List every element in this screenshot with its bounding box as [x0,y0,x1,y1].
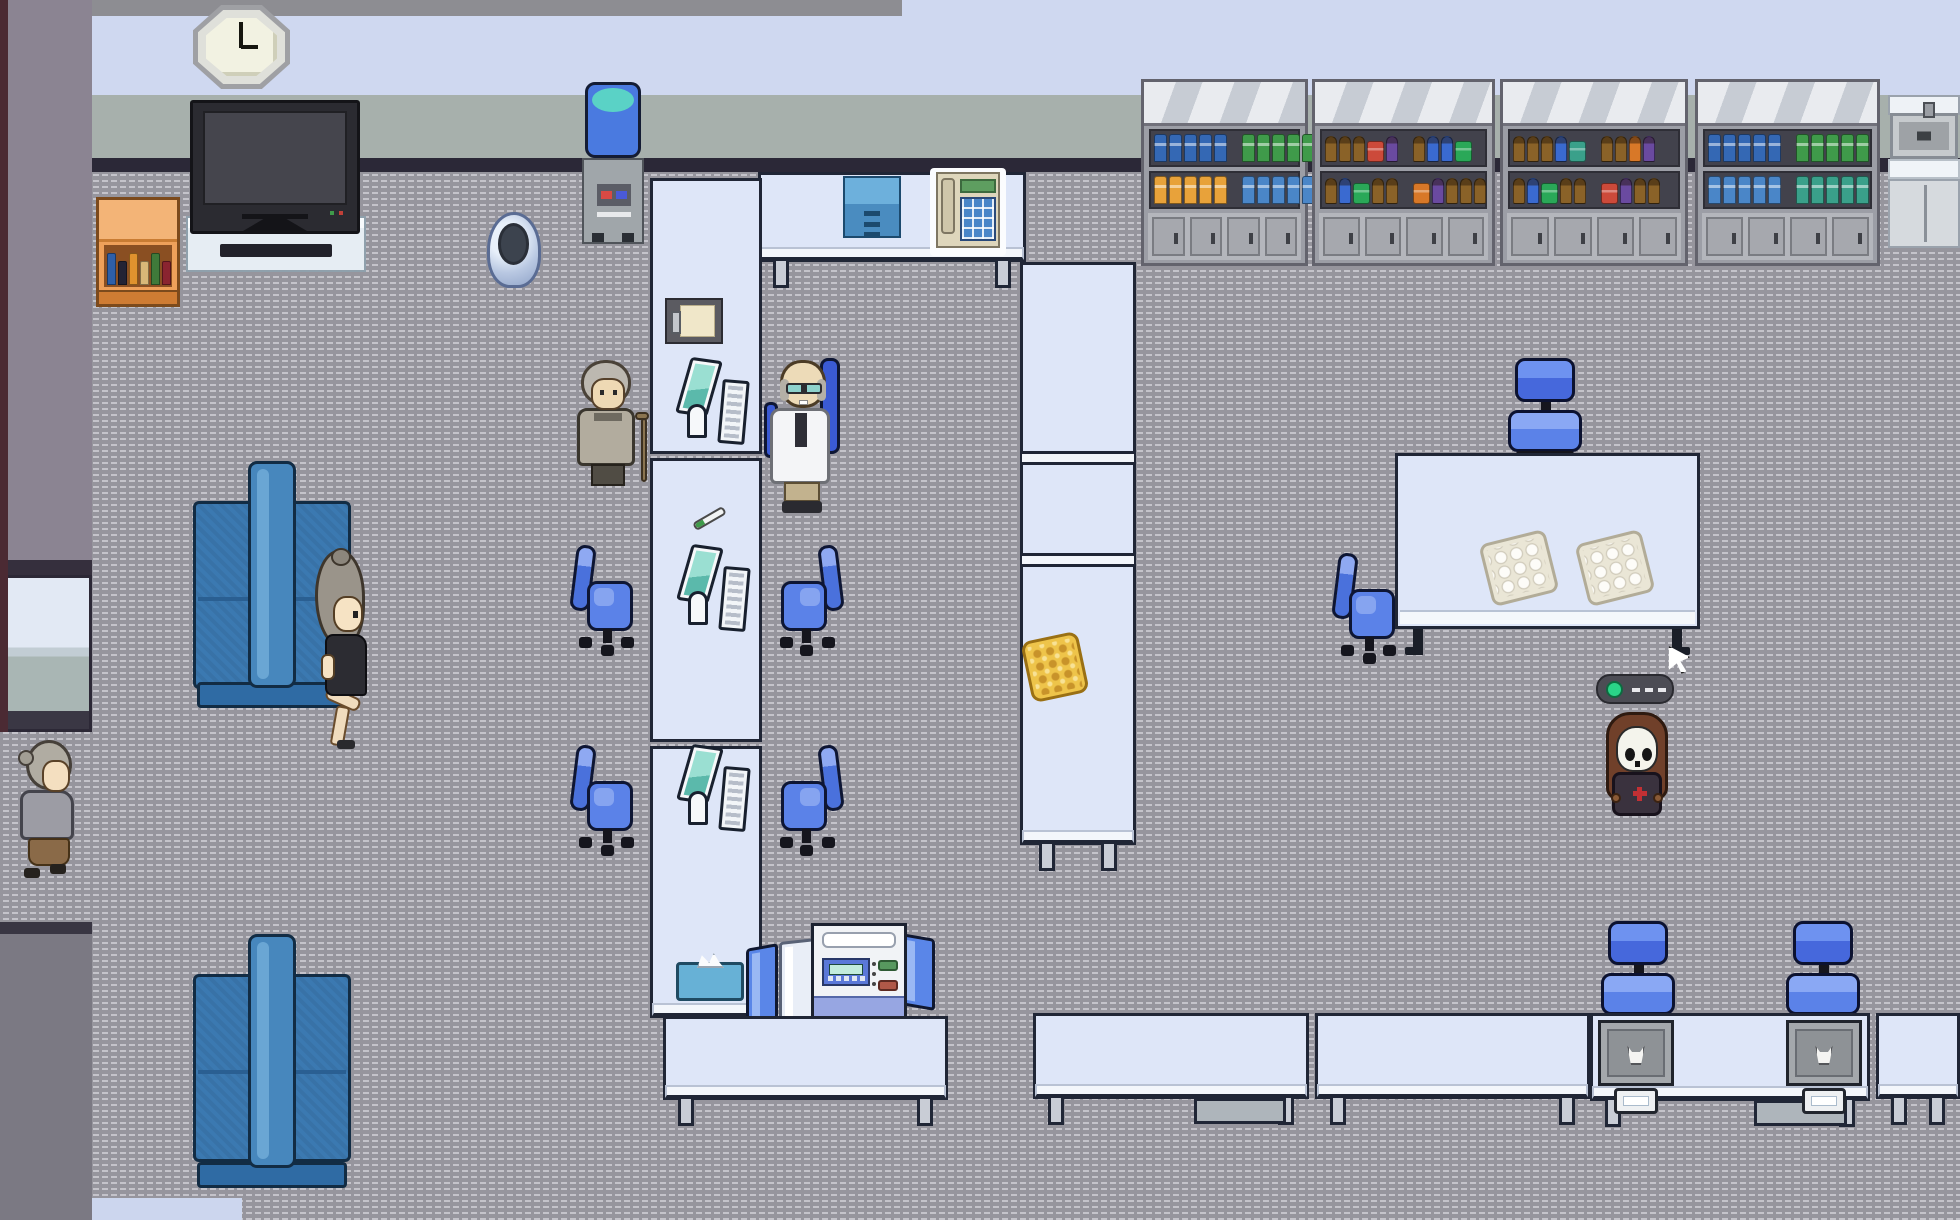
shelf-item [1386,136,1398,162]
shelf-item [1214,176,1227,204]
chair-highlight [1356,596,1376,614]
shelf-glass-top [1144,82,1305,126]
bottom-left-wall-top [0,922,92,934]
doctor-lapel [795,413,807,447]
phone-keypad [960,197,996,241]
couch-backrest-highlight [257,469,269,679]
chair-highlight [594,788,614,806]
doctor-coat [770,408,830,484]
chair-foot [800,845,813,856]
station-tray-inner [1811,1096,1837,1106]
keyboard-keys [725,572,744,625]
food-item[interactable] [1020,631,1090,704]
left-wall [0,0,92,575]
cabinet-door [1323,217,1360,256]
book [118,261,127,285]
shelf-gap [1588,202,1599,204]
old-woman-shoe [24,868,40,878]
shelf-row [1320,171,1487,209]
chair-seat [1601,973,1675,1015]
chair-foot [780,837,793,848]
hospital-room-scene [0,0,1960,1220]
doctor[interactable] [764,358,842,514]
tissue-sheet [697,953,724,968]
shelf-item [1723,176,1736,204]
shelf-item [1325,178,1337,204]
shelf-item [1272,176,1285,204]
power-led [1606,681,1623,698]
sink-unit[interactable] [1888,95,1960,248]
chair-foot [621,837,634,848]
bookshelf-books [104,245,172,287]
shelf-item [1257,134,1270,162]
chair-seat [781,581,827,631]
cabinet-door [1706,217,1743,256]
thermometer[interactable] [690,500,730,538]
shelf-item [1708,176,1721,204]
shelf-cabinet [1148,213,1301,260]
cabinet-door [1448,217,1485,256]
shelf-item [1753,176,1766,204]
woman-patient-sitting[interactable] [291,548,373,748]
cooler-foot [622,233,634,242]
woman-arm [321,654,335,680]
shelf-item [1242,176,1255,204]
shelf-glass-top [1503,82,1685,126]
analyzer-panel [822,958,870,986]
chair-foot [822,837,835,848]
waffle-pattern [1027,638,1082,696]
shelf-item [1455,141,1472,162]
tv-led [330,211,343,215]
bottom-left-floor-patch [92,1198,242,1220]
drawer-handle [864,211,880,216]
shelf-item [1723,134,1736,162]
doctor-glasses [786,383,822,394]
shelf-gap [1400,160,1411,162]
chair-foot [579,637,592,648]
trash-bin[interactable] [487,212,541,288]
shelf-item [1325,136,1337,162]
remote-device[interactable] [1596,674,1674,704]
chair-stem [603,829,612,843]
shelf-item [1708,134,1721,162]
thermometer-tip [695,520,705,529]
shelf-glass-top [1698,82,1877,126]
television [190,100,360,234]
work-desk [1033,1013,1309,1099]
station-tray [1614,1088,1658,1114]
skull-eye [1625,748,1635,761]
cabinet-door [1227,217,1260,256]
desk-cap [1878,1084,1958,1097]
shelf-item [1427,136,1439,162]
red-button [878,980,898,991]
office-chair[interactable] [573,743,637,861]
tv-screen [203,111,347,205]
chair-stem [802,829,811,843]
shelf-item [1386,178,1398,204]
old-woman-shawl [20,790,74,840]
shelf-cabinet [1702,213,1873,260]
shelf-item [1353,136,1365,162]
shelf-item [1634,178,1646,204]
chair-seat [587,581,633,631]
cabinet-door [1790,217,1827,256]
chair-foot [601,645,614,656]
sink-counter-band [1888,159,1960,179]
cabinet-door [1365,217,1402,256]
analyzer-slot [822,932,896,948]
cabinet-door [1190,217,1223,256]
old-man-face [591,378,625,410]
cabinet-door [1152,217,1185,256]
skull-nose [1635,761,1640,767]
chair-backrest [1793,921,1853,965]
shelf-row [1703,171,1872,209]
drawer-handle [864,222,880,227]
shelf-item [1413,136,1425,162]
shelf-item [1615,136,1627,162]
desk-leg [1559,1095,1575,1125]
thermometer-body [692,506,727,531]
old-man-eye [613,390,617,395]
analyzer-keys [828,976,866,981]
elderly-man-with-cane[interactable] [573,360,647,492]
chair-seat [1349,589,1395,639]
desk-phone[interactable] [930,168,1006,256]
shelf-item [1513,136,1525,162]
monitor-arm [688,791,708,825]
shelf-item [1541,183,1558,204]
counter-leg [1101,841,1117,871]
shelf-item [1446,178,1458,204]
desk-leg [678,1096,694,1126]
work-desk [1876,1013,1960,1099]
panel-highlight [752,952,760,1017]
shelf-item [1768,134,1781,162]
old-man-legs [591,464,625,486]
cabinet-door [1406,217,1443,256]
shelf-item [1527,136,1539,162]
chair-stem [603,629,612,643]
doctor-head [780,360,826,408]
old-man-collar [594,413,622,421]
office-chair[interactable] [1508,358,1582,458]
shelf-item [1413,183,1430,204]
cabinet-door [1265,217,1298,256]
office-chair[interactable] [573,543,637,657]
chair-highlight [800,588,820,606]
shelf-item [1738,134,1751,162]
supply-shelf-1[interactable] [1141,79,1308,266]
cold-tap [616,191,627,199]
couch-backrest [248,461,296,688]
chair-stem [802,629,811,643]
old-woman-hair-bun [18,750,34,766]
chair-foot [579,837,592,848]
skull-mask [1616,726,1658,772]
bin-opening [498,223,530,265]
shelf-item [1541,136,1553,162]
tv-neck [242,214,308,219]
old-man-eye [600,390,604,395]
shelf-item [1353,183,1370,204]
counter-cap [652,1003,760,1016]
shelf-gap [1783,202,1794,204]
desk-leg [995,258,1011,288]
chair-foot [1383,645,1396,656]
shelf-item [1154,134,1167,162]
counter-leg [1039,841,1055,871]
station-body [1786,1020,1862,1086]
shelf-item [1811,176,1824,204]
table-cap [1400,610,1695,624]
shelf-item [1367,141,1384,162]
bookshelf-top [99,200,177,242]
shelf-item [1768,176,1781,204]
drip-tray [597,212,631,217]
bookshelf[interactable] [96,197,180,307]
desk-under-shelf [1194,1098,1286,1124]
wall-clock [193,5,290,89]
red-cross [1633,791,1647,796]
shelf-item [1629,136,1641,162]
sink-basin [1890,113,1958,159]
book [140,261,149,285]
long-counter-right [1020,262,1136,845]
tray-wells [1583,537,1647,599]
work-desk [663,1016,948,1100]
media-player [220,244,333,257]
shelf-item [1199,176,1212,204]
shelf-row [1703,129,1872,167]
analyzer-band [814,996,904,1016]
hot-tap [601,191,612,199]
left-doorway[interactable] [8,575,92,732]
shelf-row [1320,129,1487,167]
woman-eye [353,611,358,618]
shelf-item [1856,176,1869,204]
shelf-item [1826,134,1839,162]
remote-buttons [1632,688,1670,692]
shelf-row [1508,171,1680,209]
cabinet-divider [1924,185,1927,242]
counter-divider [1022,451,1134,465]
office-chair[interactable] [1601,921,1675,1020]
indicator-dot [872,982,876,986]
supply-shelf-4[interactable] [1695,79,1880,266]
shelf-item [1796,176,1809,204]
shelf-cabinet [1319,213,1488,260]
shelf-gap [1783,160,1794,162]
cabinet-door [1748,217,1785,256]
shelf-item [1796,134,1809,162]
book [151,253,160,285]
chair-foot [1341,645,1354,656]
old-man-coat [577,408,635,466]
shelf-item [1527,178,1539,204]
desk-leg [1929,1095,1945,1125]
shelf-item [1601,136,1613,162]
shelf-item [1574,178,1586,204]
shelf-item [1841,134,1854,162]
clipboard[interactable] [665,298,723,344]
left-wall-edge [0,0,8,732]
book [107,253,116,285]
desk-leg [773,258,789,288]
shelf-row [1508,129,1680,167]
computer-station-2[interactable] [684,543,748,638]
chair-seat [1508,410,1582,452]
indicator-dot [872,972,876,976]
chair-foot [780,637,793,648]
tv-foot [243,219,307,231]
woman-shoe [337,740,355,749]
drawer-unit[interactable] [843,176,901,238]
water-cooler[interactable] [580,82,646,250]
shelf-item [1184,134,1197,162]
desk-leg [1330,1095,1346,1125]
panel-highlight [785,947,793,1018]
keyboard [718,566,750,632]
shelf-gap [1229,160,1240,162]
clock-hour-hand [241,45,258,49]
shelf-item [1372,178,1384,204]
phone-body [936,172,1000,248]
water-bottle [585,82,641,158]
chair-seat [1786,973,1860,1015]
elderly-woman-walking[interactable] [14,740,90,882]
doctor-shoes [782,501,822,513]
woman-hair-bun [331,548,351,566]
keyboard [718,766,750,832]
old-woman-face [42,760,70,792]
shelf-item [1856,134,1869,162]
desk-leg [1891,1095,1907,1125]
woman-face [333,596,363,632]
supply-shelf-3[interactable] [1500,79,1688,266]
lab-sink-station[interactable] [1786,1020,1862,1114]
desk-leg [917,1096,933,1126]
cooler-panel [597,184,631,206]
shelf-cabinet [1507,213,1681,260]
keyboard [717,379,749,445]
sink-cabinet-doors [1888,179,1960,248]
table-caster-foot [1405,647,1423,655]
green-button [878,960,898,971]
clipboard-clip [671,311,681,334]
desk-cap [665,1085,946,1098]
cabinet-door [1832,217,1869,256]
shelf-item [1460,178,1472,204]
bottom-left-wall [0,922,92,1220]
shelf-row [1149,171,1300,209]
chair-foot [601,845,614,856]
shelf-gap [1229,202,1240,204]
shelf-item [1214,134,1227,162]
station-body [1598,1020,1674,1086]
computer-station-1[interactable] [683,356,747,448]
clipboard-paper [680,305,715,337]
lab-sink-station[interactable] [1598,1020,1674,1114]
cane [641,418,647,482]
doctor-mouth [799,400,808,405]
shelf-item [1287,176,1300,204]
chair-foot [822,637,835,648]
shelf-row [1149,129,1300,167]
counter-divider [1022,553,1134,567]
chair-stem [1365,637,1374,651]
cabinet-door [1511,217,1549,256]
phone-display [960,179,996,193]
chair-seat [587,781,633,831]
analyzer-lcd [829,964,863,975]
woman-dress [325,634,367,696]
monitor-arm [688,591,708,625]
shelf-item [1826,176,1839,204]
indicator-dot [872,962,876,966]
office-chair[interactable] [777,543,841,657]
shelf-item [1620,178,1632,204]
doctor-pants [784,482,820,502]
keyboard-keys [724,385,743,438]
phone-handset [941,178,955,234]
waiting-couch-bottom[interactable] [193,934,351,1188]
sink-faucet [1923,102,1935,118]
keyboard-keys [725,772,744,825]
computer-station-3[interactable] [684,743,748,838]
shelf-gap [1400,202,1411,204]
chair-highlight [800,788,820,806]
tray-wells [1487,537,1551,599]
chair-backrest [1608,921,1668,965]
character-hand [1653,793,1663,803]
left-wall-trim [0,560,92,575]
office-chair[interactable] [777,743,841,861]
shelf-item [1169,176,1182,204]
monitor-arm [687,404,707,438]
shelf-item [1154,176,1167,204]
book [162,261,171,285]
character-robe [1612,772,1662,816]
shelf-item [1169,134,1182,162]
tissue-box[interactable] [676,953,744,1001]
shelf-item [1184,176,1197,204]
cabinet-door [1597,217,1635,256]
desk-cap [1035,1084,1307,1097]
shelf-item [1753,134,1766,162]
bookshelf-base [99,290,177,304]
desk-leg [1048,1095,1064,1125]
shelf-item [1257,176,1270,204]
supply-shelf-2[interactable] [1312,79,1495,266]
shelf-item [1339,136,1351,162]
shelf-item [1199,134,1212,162]
office-chair[interactable] [1335,551,1399,663]
skull-masked-character[interactable] [1604,708,1670,820]
shelf-item [1601,183,1618,204]
character-hand [1611,793,1621,803]
shelf-item [1555,136,1567,162]
office-chair[interactable] [1786,921,1860,1020]
station-tray [1802,1088,1846,1114]
shelf-item [1738,176,1751,204]
drawer-face-top [845,178,899,204]
book [129,253,138,285]
chair-backrest [1515,358,1575,402]
privacy-panel [746,943,778,1025]
